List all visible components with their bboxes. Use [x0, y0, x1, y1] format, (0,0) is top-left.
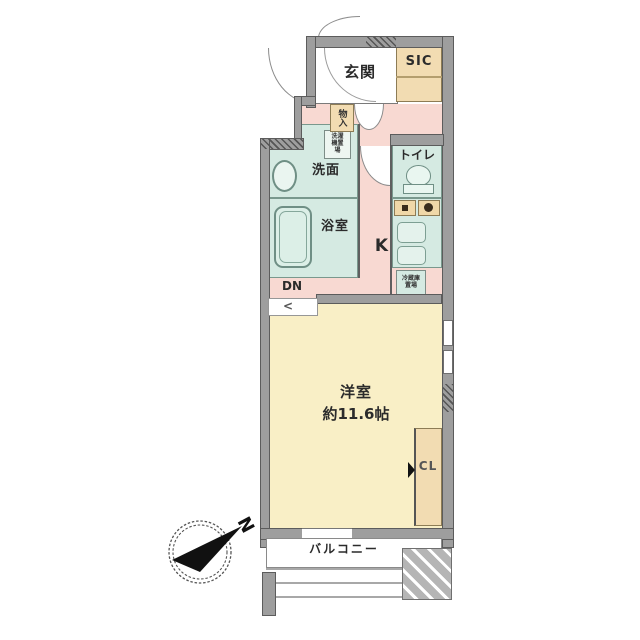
washbasin-icon: [272, 160, 297, 192]
bathroom-label: 浴室: [312, 220, 358, 234]
balcony-hatched-block: [402, 548, 452, 600]
wall-hatch-right: [443, 384, 453, 412]
exterior-mask: [254, 100, 294, 138]
toilet-tank-icon: [403, 184, 434, 194]
wall-hatch-top: [366, 37, 396, 47]
main-room-size-label: 約11.6帖: [306, 406, 406, 423]
entrance-label: 玄関: [332, 64, 388, 81]
dn-step-strip: <: [268, 298, 318, 316]
corridor-wall-right: [390, 144, 392, 296]
balcony-rail-line-3: [266, 596, 404, 598]
fridge-space-label: 冷蔵庫置場: [402, 276, 420, 290]
kitchen-sink-upper: [397, 222, 426, 243]
wall-hatch-left-jut: [261, 139, 303, 149]
balcony-left-pillar: [262, 572, 276, 616]
window-right-lower: [443, 350, 453, 374]
window-right-upper: [443, 320, 453, 346]
dn-step-chevron: <: [283, 300, 294, 313]
main-room-label: 洋室: [320, 384, 392, 401]
stove-burner-right-dot: [424, 203, 433, 212]
balcony-rail-line-2: [266, 582, 404, 584]
washroom-label: 洗面: [302, 164, 350, 178]
shoe-closet-label: SIC: [397, 55, 441, 69]
washer-space-label: 洗濯機置場: [330, 134, 346, 155]
closet-strip: [414, 428, 442, 526]
toilet-label: トイレ: [394, 149, 440, 162]
entry-door-arc-outside-top: [318, 16, 360, 38]
down-label: DN: [276, 280, 308, 293]
wall-right: [442, 36, 454, 548]
wall-left-main: [260, 138, 270, 548]
fridge-space-box: 冷蔵庫置場: [396, 270, 426, 296]
kitchen-label: K: [370, 237, 394, 256]
balcony-rail-line-1: [266, 568, 404, 570]
toilet-bowl-icon: [406, 165, 431, 186]
corridor-wall-left: [358, 124, 360, 278]
bathtub-inner-line: [279, 211, 307, 263]
shoe-closet-shelf-line: [396, 76, 442, 78]
floor-plan: 洗濯機置場 冷蔵庫置場 物入 <: [0, 0, 640, 640]
closet-label: CL: [414, 460, 442, 473]
kitchen-sink-lower: [397, 246, 426, 265]
wall-mainroom-top: [316, 294, 442, 304]
stove-burner-left-dot: [402, 205, 408, 211]
washer-space-box: 洗濯機置場: [324, 130, 351, 159]
storage-box: 物入: [330, 104, 354, 132]
compass-north-label: N: [233, 513, 259, 536]
balcony-label: バルコニー: [298, 543, 390, 556]
compass: N: [160, 498, 260, 598]
wall-toilet-top: [390, 134, 444, 146]
storage-label: 物入: [336, 109, 349, 127]
